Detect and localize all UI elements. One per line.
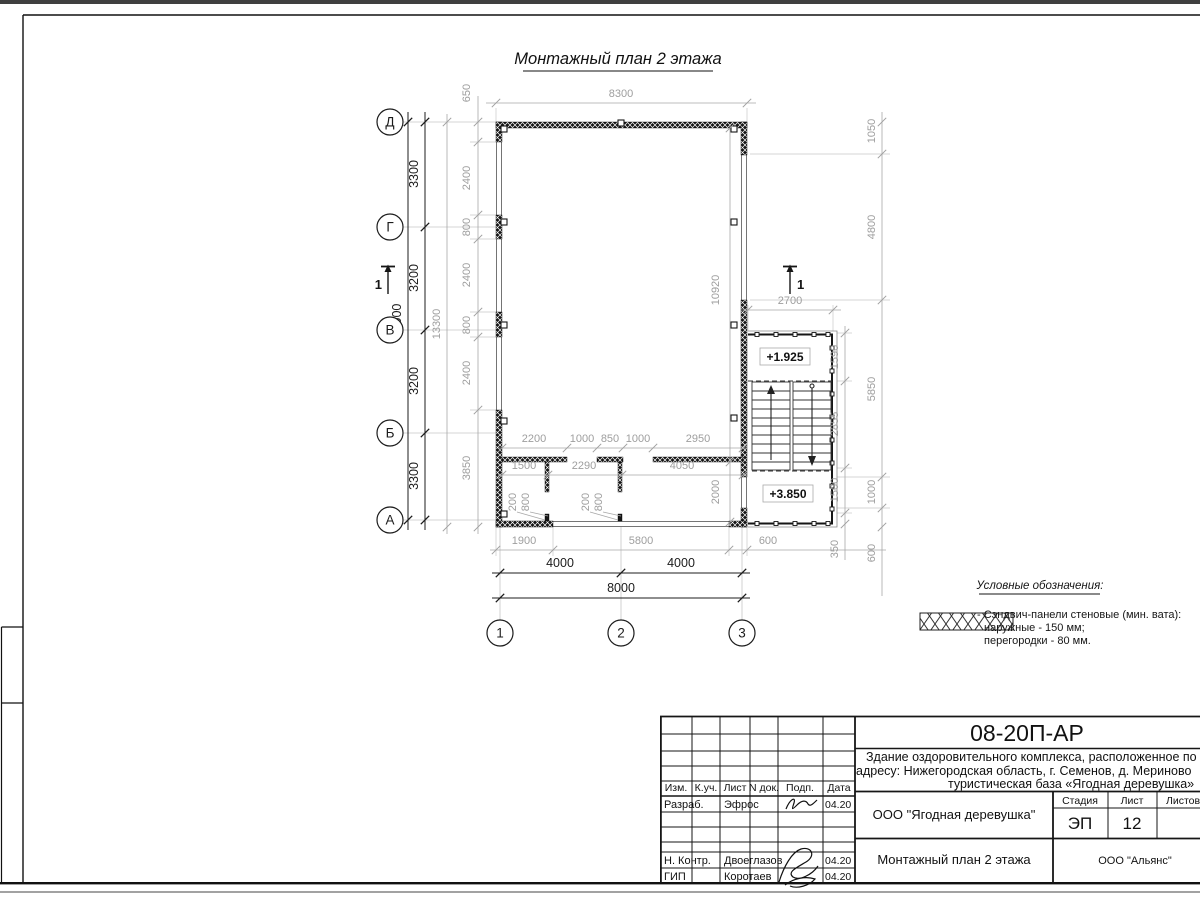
legend: Условные обозначения: - Сэндвич-панели с… [920, 580, 1181, 647]
tb-header-cell: Изм. [665, 782, 688, 794]
dim-top-overall: 8300 [609, 88, 633, 100]
axis-row-label: В [385, 323, 394, 338]
dim: 3850 [461, 456, 473, 480]
tb-header-cell: N док. [749, 782, 779, 794]
dim: 1000 [866, 480, 878, 504]
tb-stage-value: ЭП [1068, 814, 1092, 833]
dim: 1590 [829, 345, 841, 369]
dim-annex-width: 2700 [778, 295, 802, 307]
dimension-ticks-gray [443, 99, 886, 554]
partition-walls [502, 457, 743, 521]
axis-col-label: 2 [617, 626, 625, 641]
tb-date: 04.20 [825, 871, 851, 883]
dim: 2400 [461, 263, 473, 287]
section-mark-left: 1 [375, 265, 395, 295]
dim: 3300 [407, 160, 421, 188]
dim: 1900 [512, 535, 536, 547]
tb-header-cell: Подп. [786, 782, 814, 794]
tb-project-line: адресу: Нижегородская область, г. Семено… [856, 764, 1191, 778]
axis-row-label: А [385, 513, 394, 528]
dim: 5800 [629, 535, 653, 547]
dimension-lines-black [408, 112, 750, 598]
dim: 1500 [512, 460, 536, 472]
dim: 850 [601, 433, 619, 445]
tb-company: ООО "Ягодная деревушка" [873, 807, 1036, 822]
dim: 4000 [546, 556, 574, 570]
level-lower: +3.850 [769, 487, 806, 501]
staircase [748, 381, 832, 471]
dim-wall-height: 10920 [710, 275, 722, 306]
tb-header-cell: Лист [724, 782, 747, 794]
section-label-left: 1 [375, 277, 382, 292]
dimension-ticks-black [404, 118, 746, 602]
dim: 350 [829, 540, 841, 558]
section-label-right: 1 [797, 277, 804, 292]
dim: 2855 [829, 412, 841, 436]
page-title: Монтажный план 2 этажа [514, 50, 721, 68]
dim: 5850 [866, 377, 878, 401]
dim: 1500 [829, 478, 841, 502]
axis-col-label: 3 [738, 626, 746, 641]
tb-role: Н. Контр. [664, 855, 711, 867]
tb-name: Двоеглазов [724, 855, 783, 867]
dim: 4000 [667, 556, 695, 570]
dim: 600 [759, 535, 777, 547]
tb-contractor: ООО "Альянс" [1098, 855, 1172, 867]
dim: 600 [866, 544, 878, 562]
tb-role: Разраб. [664, 799, 704, 811]
tb-doc-title: Монтажный план 2 этажа [877, 852, 1031, 867]
drawing-title: Монтажный план 2 этажа [514, 50, 721, 71]
witness-lines [470, 108, 890, 556]
stair-treads [752, 391, 831, 462]
axis-col-label: 1 [496, 626, 504, 641]
level-marks: +1.925 +3.850 [760, 348, 813, 502]
axis-row-label: Г [386, 220, 394, 235]
tb-sheet-number: 12 [1123, 814, 1142, 833]
legend-title: Условные обозначения: [976, 580, 1104, 592]
tb-sheets-label: Листов [1166, 795, 1200, 807]
legend-line: - Сэндвич-панели стеновые (мин. вата): [977, 609, 1181, 621]
level-upper: +1.925 [766, 350, 803, 364]
stair-up-arrow [767, 385, 775, 460]
dim: 650 [461, 84, 473, 102]
dim: 800 [520, 493, 532, 511]
title-block: Изм. К.уч. Лист N док. Подп. Дата Разраб… [660, 716, 1200, 887]
tb-name: Коротаев [724, 871, 772, 883]
tb-stage-label: Стадия [1062, 795, 1098, 807]
dim: 3200 [407, 264, 421, 292]
legend-line: наружные - 150 мм; [984, 622, 1085, 634]
dim: 4800 [866, 215, 878, 239]
axis-lines [403, 122, 742, 620]
dim: 2400 [461, 166, 473, 190]
tb-project-line: туристическая база «Ягодная деревушка» [948, 777, 1194, 791]
dim: 3200 [407, 367, 421, 395]
dimension-texts-black: 13000 3300 3200 3200 3300 4000 4000 8000 [390, 160, 695, 595]
dim: 2950 [686, 433, 710, 445]
dim: 200 [580, 493, 592, 511]
dim: 800 [461, 218, 473, 236]
dim: 2000 [710, 480, 722, 504]
dim: 4050 [670, 460, 694, 472]
tb-header-cell: К.уч. [695, 782, 718, 794]
tb-document-code: 08-20П-АР [970, 720, 1084, 746]
dim: 800 [593, 493, 605, 511]
axis-row-label: Б [386, 426, 395, 441]
dim-left-overall: 13300 [431, 309, 443, 340]
dim: 1000 [570, 433, 594, 445]
section-mark-right: 1 [783, 265, 804, 295]
signature-developer [786, 799, 817, 809]
left-stamp-boxes [2, 627, 24, 883]
legend-line: перегородки - 80 мм. [984, 635, 1091, 647]
dim-bottom-total: 8000 [607, 581, 635, 595]
dim: 2290 [572, 460, 596, 472]
tb-name: Эфрос [724, 799, 759, 811]
dim: 800 [461, 316, 473, 334]
drawing-sheet: Монтажный план 2 этажа [0, 0, 1200, 900]
tb-date: 04.20 [825, 855, 851, 867]
dim: 3300 [407, 462, 421, 490]
dim: 1050 [866, 119, 878, 143]
tb-role: ГИП [664, 871, 686, 883]
cad-drawing-canvas: Монтажный план 2 этажа [0, 0, 1200, 900]
dim: 2200 [522, 433, 546, 445]
tb-sheet-label: Лист [1121, 795, 1144, 807]
tb-date: 04.20 [825, 799, 851, 811]
dim: 200 [507, 493, 519, 511]
tb-header-cell: Дата [827, 782, 850, 794]
tb-project-line: Здание оздоровительного комплекса, распо… [866, 750, 1197, 764]
dim: 2400 [461, 361, 473, 385]
tb-project-name: Здание оздоровительного комплекса, распо… [856, 750, 1197, 791]
dim: 1000 [626, 433, 650, 445]
stair-down-arrow [808, 384, 816, 466]
axis-row-label: Д [385, 115, 394, 130]
